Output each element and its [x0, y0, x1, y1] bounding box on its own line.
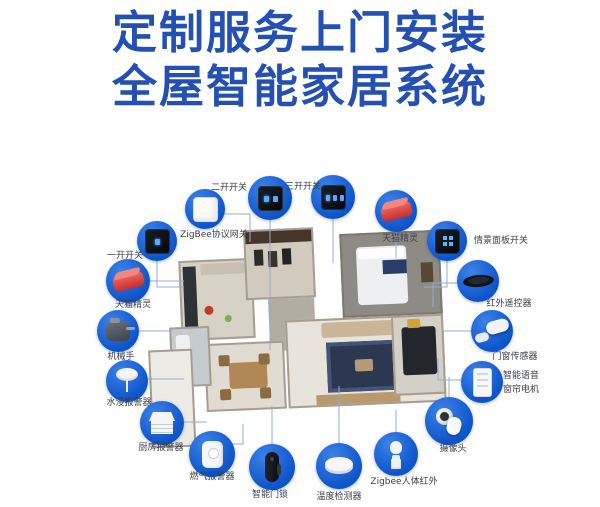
door-window-sensor: [471, 310, 513, 352]
scene-panel-switch: [427, 221, 467, 261]
camera: [425, 397, 473, 445]
smart-voice-curtain-motor-label: 窗帘电机: [503, 382, 539, 395]
switch-three-gang-label: 三开开关: [285, 179, 321, 192]
zigbee-body-infrared-label: Zigbee人体红外: [370, 474, 437, 487]
kitchenalarm-icon: [149, 412, 175, 434]
temp-icon: [325, 457, 353, 475]
switch1-icon: [145, 229, 170, 254]
door-window-sensor-label: 门窗传感器: [492, 349, 537, 362]
water-leak-alarm-label: 水浸报警器: [106, 395, 151, 408]
zigbee-gateway: [185, 189, 225, 229]
switch-one-gang: [137, 221, 177, 261]
switch3-icon: [321, 185, 346, 210]
lock-icon: [265, 452, 279, 482]
kitchen-alarm-label: 厨房报警器: [138, 440, 183, 453]
gas-icon: [202, 441, 223, 468]
tmall-genie-right-label: 天猫精灵: [382, 231, 418, 244]
curtain-icon: [473, 368, 492, 397]
smart-voice-curtain-motor: [461, 361, 503, 403]
smart-door-lock: [249, 444, 295, 490]
tmall-genie-left-label: 天猫精灵: [115, 297, 151, 310]
title-line-2: 全屋智能家居系统: [0, 60, 600, 114]
smart-voice-curtain-motor-label: 智能语音: [503, 368, 539, 381]
kitchen-alarm: [140, 401, 184, 445]
gateway-icon: [193, 197, 218, 222]
temperature-detector-label: 温度检测器: [316, 489, 361, 502]
camera-icon: [434, 406, 465, 437]
water-icon: [116, 368, 138, 395]
zigbee-body-infrared: [374, 432, 418, 476]
camera-label: 摄像头: [439, 441, 466, 454]
irremote-icon: [462, 274, 494, 289]
genie-icon: [111, 270, 145, 292]
switch-two-gang-label: 二开开关: [211, 180, 247, 193]
switch2-icon: [258, 186, 283, 211]
robot-hand: [97, 310, 139, 352]
robothand-icon: [106, 322, 130, 341]
scenepanel-icon: [435, 229, 460, 254]
tmall-genie-right: [375, 190, 417, 232]
pir-icon: [388, 441, 404, 467]
poster: 定制服务上门安装 全屋智能家居系统: [0, 0, 600, 507]
smart-door-lock-label: 智能门锁: [252, 487, 288, 500]
scene-panel-switch-label: 情景面板开关: [474, 233, 528, 246]
poster-title: 定制服务上门安装 全屋智能家居系统: [0, 6, 600, 114]
zigbee-gateway-label: ZigBee协议网关: [180, 227, 248, 240]
infrared-remote-label: 红外遥控器: [486, 296, 531, 309]
title-line-1: 定制服务上门安装: [0, 6, 600, 60]
genie-icon: [379, 200, 413, 222]
temperature-detector: [316, 443, 362, 489]
doorsensor-icon: [475, 318, 509, 345]
gas-alarm-label: 燃气报警器: [189, 469, 234, 482]
